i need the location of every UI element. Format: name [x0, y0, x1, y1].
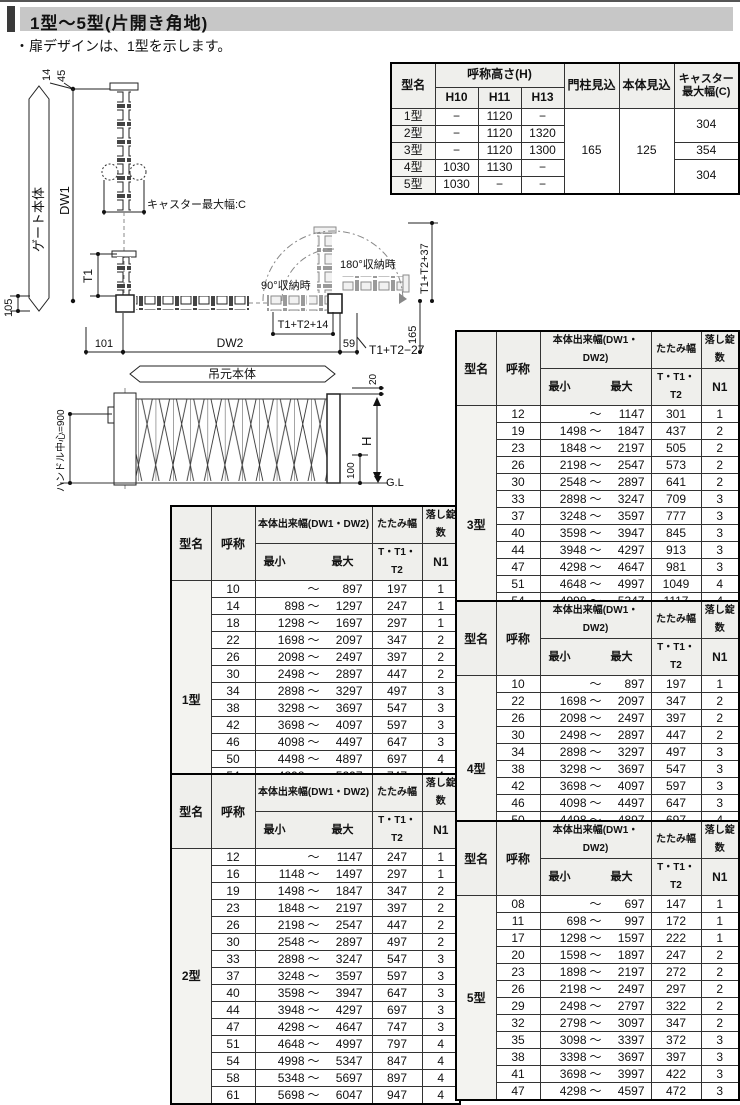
- size-row: 464098〜44976473: [171, 734, 460, 751]
- size-fold: 447: [372, 666, 422, 683]
- size-name: 44: [211, 1002, 255, 1019]
- size-row: 342898〜32974973: [171, 683, 460, 700]
- size-row: 514648〜499710494: [456, 576, 739, 593]
- col-model: 型名: [456, 331, 496, 406]
- spec-col-h13: H13: [521, 87, 564, 108]
- dim-14-label: 14: [41, 69, 53, 81]
- size-width: 2098〜2497: [540, 710, 651, 727]
- size-row: 585348〜56978974: [171, 1070, 460, 1087]
- size-lock: 3: [701, 1083, 739, 1101]
- size-lock: 2: [701, 981, 739, 998]
- page: { "page": { "title": "1型〜5型(片開き角地)", "no…: [0, 0, 740, 1055]
- stored-180-end-cap: [403, 275, 409, 292]
- size-width: 4998〜5347: [255, 1053, 372, 1070]
- size-width: 1698〜2097: [255, 632, 372, 649]
- size-name: 23: [211, 900, 255, 917]
- spec-col-caster: キャスター最大幅(C): [674, 63, 739, 108]
- size-row: 181298〜16972971: [171, 615, 460, 632]
- size-width: 〜897: [540, 676, 651, 693]
- size-row: 262198〜24972972: [456, 981, 739, 998]
- size-fold: 297: [372, 615, 422, 632]
- spec-h13: −: [521, 176, 564, 194]
- spec-model: 5型: [391, 176, 435, 194]
- spec-h10: −: [435, 125, 478, 142]
- gl-label: G.L: [386, 477, 404, 489]
- size-row: 353098〜33973723: [456, 1032, 739, 1049]
- size-name: 26: [211, 649, 255, 666]
- h-label: H: [359, 437, 374, 446]
- size-fold: 347: [651, 1015, 701, 1032]
- col-fold-sub: T・T1・T2: [372, 812, 422, 849]
- size-name: 22: [211, 632, 255, 649]
- size-row: 201598〜18972472: [456, 947, 739, 964]
- size-fold: 647: [372, 985, 422, 1002]
- size-name: 11: [496, 913, 540, 930]
- stored-180-label: 180°収納時: [340, 258, 396, 271]
- size-name: 34: [496, 744, 540, 761]
- size-name: 58: [211, 1070, 255, 1087]
- hanging-post: [114, 393, 136, 485]
- size-fold: 797: [372, 1036, 422, 1053]
- size-name: 41: [496, 1066, 540, 1083]
- spec-model: 1型: [391, 108, 435, 125]
- size-fold: 297: [651, 981, 701, 998]
- size-row: 11698〜9971721: [456, 913, 739, 930]
- stored-90-vertical-chain: [317, 233, 332, 293]
- size-name: 12: [211, 849, 255, 866]
- size-name: 37: [211, 968, 255, 985]
- size-row: 383398〜36973973: [456, 1049, 739, 1066]
- size-name: 30: [496, 474, 540, 491]
- col-fold: たたみ幅: [651, 821, 701, 859]
- size-width: 4098〜4497: [540, 795, 651, 812]
- size-lock: 3: [701, 778, 739, 795]
- size-table-type2: 型名呼称本体出来幅(DW1・DW2)たたみ幅落し錠数最小最大T・T1・T2N12…: [170, 773, 459, 1105]
- size-width: 3098〜3397: [540, 1032, 651, 1049]
- t1t2-37-label: T1+T2+37: [419, 243, 431, 294]
- size-row: 474298〜46477473: [171, 1019, 460, 1036]
- size-lock: 3: [701, 542, 739, 559]
- col-width: 本体出来幅(DW1・DW2): [540, 331, 651, 369]
- size-width: 4498〜4897: [255, 751, 372, 768]
- size-width: 3398〜3697: [540, 1049, 651, 1066]
- size-width: 2898〜3247: [255, 951, 372, 968]
- size-row: 615698〜60479474: [171, 1087, 460, 1105]
- size-name: 23: [496, 964, 540, 981]
- size-fold: 197: [651, 676, 701, 693]
- col-min-max: 最小最大: [540, 859, 651, 896]
- size-width: 2098〜2497: [255, 649, 372, 666]
- size-lock: 2: [701, 457, 739, 474]
- col-min-max: 最小最大: [540, 639, 651, 676]
- size-lock: 2: [701, 693, 739, 710]
- spec-h10: 1030: [435, 159, 478, 176]
- col-model: 型名: [456, 821, 496, 896]
- size-lock: 3: [701, 525, 739, 542]
- size-lock: 2: [701, 998, 739, 1015]
- size-name: 18: [211, 615, 255, 632]
- spec-h10: −: [435, 142, 478, 159]
- size-name: 32: [496, 1015, 540, 1032]
- size-name: 40: [211, 985, 255, 1002]
- size-width: 1148〜1497: [255, 866, 372, 883]
- size-row: 332898〜32475473: [171, 951, 460, 968]
- col-lock-sub: N1: [701, 859, 739, 896]
- size-fold: 505: [651, 440, 701, 457]
- stored-180-chain: [342, 276, 404, 291]
- size-width: 〜697: [540, 896, 651, 913]
- size-row: 332898〜32477093: [456, 491, 739, 508]
- spec-col-body: 本体見込: [619, 63, 674, 108]
- size-fold: 709: [651, 491, 701, 508]
- size-fold: 497: [372, 683, 422, 700]
- size-width: 2198〜2497: [540, 981, 651, 998]
- size-width: 1498〜1847: [255, 883, 372, 900]
- col-name: 呼称: [496, 331, 540, 406]
- size-fold: 197: [372, 581, 422, 598]
- size-name: 26: [496, 981, 540, 998]
- size-fold: 247: [651, 947, 701, 964]
- col-min-max: 最小最大: [540, 369, 651, 406]
- spec-h11: 1120: [478, 125, 521, 142]
- size-lock: 1: [701, 896, 739, 913]
- stored-90-vertical-cap: [314, 227, 336, 233]
- size-fold: 247: [372, 598, 422, 615]
- size-width: 4648〜4997: [255, 1036, 372, 1053]
- gate-body-label: ゲート本体: [31, 187, 46, 252]
- col-width: 本体出来幅(DW1・DW2): [255, 506, 372, 544]
- spec-model: 3型: [391, 142, 435, 159]
- size-name: 23: [496, 440, 540, 457]
- size-row: 423698〜40975973: [171, 717, 460, 734]
- col-fold: たたみ幅: [372, 506, 422, 544]
- size-width: 4098〜4497: [255, 734, 372, 751]
- accordion-lattice: [136, 399, 327, 481]
- col-lock-sub: N1: [701, 639, 739, 676]
- size-width: 1698〜2097: [540, 693, 651, 710]
- end-post: [328, 294, 342, 313]
- size-name: 51: [211, 1036, 255, 1053]
- size-fold: 147: [651, 896, 701, 913]
- size-name: 34: [211, 683, 255, 700]
- col-width: 本体出来幅(DW1・DW2): [540, 821, 651, 859]
- size-width: 3598〜3947: [540, 525, 651, 542]
- size-lock: 2: [701, 727, 739, 744]
- size-fold: 597: [372, 968, 422, 985]
- size-fold: 172: [651, 913, 701, 930]
- title-accent-bar: [7, 6, 15, 32]
- size-row: 383298〜36975473: [171, 700, 460, 717]
- size-name: 51: [496, 576, 540, 593]
- size-width: 4298〜4597: [540, 1083, 651, 1101]
- size-lock: 2: [701, 964, 739, 981]
- size-fold: 897: [372, 1070, 422, 1087]
- size-fold: 447: [372, 917, 422, 934]
- col-name: 呼称: [211, 506, 255, 581]
- size-lock: 3: [701, 744, 739, 761]
- size-width: 3948〜4297: [540, 542, 651, 559]
- size-name: 19: [211, 883, 255, 900]
- size-row: 262198〜25475732: [456, 457, 739, 474]
- size-row: 544998〜53478474: [171, 1053, 460, 1070]
- size-fold: 777: [651, 508, 701, 525]
- size-row: 443948〜42979133: [456, 542, 739, 559]
- size-row: 423698〜40975973: [456, 778, 739, 795]
- size-table: 型名呼称本体出来幅(DW1・DW2)たたみ幅落し錠数最小最大T・T1・T2N12…: [170, 773, 461, 1105]
- size-row: 231898〜21972722: [456, 964, 739, 981]
- size-width: 3698〜3997: [540, 1066, 651, 1083]
- col-fold: たたみ幅: [651, 601, 701, 639]
- size-name: 44: [496, 542, 540, 559]
- size-row: 373248〜35975973: [171, 968, 460, 985]
- size-fold: 845: [651, 525, 701, 542]
- model-cell: 2型: [171, 849, 211, 1105]
- size-width: 2548〜2897: [255, 934, 372, 951]
- handle-center-label: ハンドル中心=900: [54, 409, 67, 492]
- handle-center-dim: [68, 412, 112, 485]
- folded-gate-plan: [102, 83, 146, 212]
- elevation-end-post: [327, 394, 340, 483]
- col-fold-sub: T・T1・T2: [372, 544, 422, 581]
- size-fold: 547: [651, 761, 701, 778]
- size-lock: 1: [701, 676, 739, 693]
- size-width: 2898〜3297: [540, 744, 651, 761]
- col-fold-sub: T・T1・T2: [651, 639, 701, 676]
- extended-gate-chain: [136, 296, 249, 310]
- size-width: 3598〜3947: [255, 985, 372, 1002]
- size-row: 262098〜24973972: [171, 649, 460, 666]
- dim-45-label: 45: [56, 70, 68, 82]
- size-fold: 222: [651, 930, 701, 947]
- size-width: 2898〜3247: [540, 491, 651, 508]
- size-width: 3948〜4297: [255, 1002, 372, 1019]
- size-lock: 2: [701, 423, 739, 440]
- size-row: 403598〜39476473: [171, 985, 460, 1002]
- size-lock: 1: [701, 913, 739, 930]
- size-lock: 3: [701, 761, 739, 778]
- size-fold: 397: [651, 1049, 701, 1066]
- size-row: 262198〜25474472: [171, 917, 460, 934]
- size-row: 342898〜32974973: [456, 744, 739, 761]
- size-fold: 547: [372, 700, 422, 717]
- size-row: 171298〜15972221: [456, 930, 739, 947]
- size-fold: 647: [651, 795, 701, 812]
- size-row: 3型12〜11473011: [456, 406, 739, 423]
- t1-label: T1: [81, 269, 95, 283]
- size-lock: 2: [701, 474, 739, 491]
- t1-unit: [112, 251, 136, 295]
- size-row: 474298〜45974723: [456, 1083, 739, 1101]
- spec-col-height: 呼称高さ(H): [435, 63, 564, 87]
- size-width: 1298〜1697: [255, 615, 372, 632]
- spec-col-model: 型名: [391, 63, 435, 108]
- size-table-type5: 型名呼称本体出来幅(DW1・DW2)たたみ幅落し錠数最小最大T・T1・T2N15…: [455, 820, 738, 1101]
- size-row: 231848〜21975052: [456, 440, 739, 457]
- spec-col-h10: H10: [435, 87, 478, 108]
- size-name: 47: [496, 1083, 540, 1101]
- size-table-type3: 型名呼称本体出来幅(DW1・DW2)たたみ幅落し錠数最小最大T・T1・T2N13…: [455, 330, 738, 645]
- size-name: 54: [211, 1053, 255, 1070]
- spec-pillar-value: 165: [564, 108, 619, 194]
- size-row: 302548〜28976412: [456, 474, 739, 491]
- gl-marker: [374, 476, 382, 483]
- size-row: 514648〜49977974: [171, 1036, 460, 1053]
- size-fold: 981: [651, 559, 701, 576]
- size-name: 20: [496, 947, 540, 964]
- size-name: 38: [496, 1049, 540, 1066]
- col-width: 本体出来幅(DW1・DW2): [540, 601, 651, 639]
- size-row: 4型10〜8971971: [456, 676, 739, 693]
- size-row: 231848〜21973972: [171, 900, 460, 917]
- gate-elevation: [60, 388, 388, 489]
- corner-post: [116, 295, 134, 312]
- size-fold: 422: [651, 1066, 701, 1083]
- size-name: 16: [211, 866, 255, 883]
- col-model: 型名: [456, 601, 496, 676]
- size-lock: 1: [701, 406, 739, 423]
- col-model: 型名: [171, 774, 211, 849]
- size-fold: 322: [651, 998, 701, 1015]
- caster-max-label: キャスター最大幅:C: [147, 197, 246, 211]
- gate-handle: [108, 407, 114, 423]
- size-row: 161148〜14972971: [171, 866, 460, 883]
- size-fold: 913: [651, 542, 701, 559]
- size-lock: 4: [701, 576, 739, 593]
- size-row: 373248〜35977773: [456, 508, 739, 525]
- spec-col-pillar: 門柱見込: [564, 63, 619, 108]
- size-width: 1848〜2197: [255, 900, 372, 917]
- size-width: 1598〜1897: [540, 947, 651, 964]
- dim-20-label: 20: [368, 373, 379, 385]
- caster-wheel-right: [130, 164, 146, 180]
- dim-59-label: 59: [343, 338, 355, 350]
- caster-wheel-left: [102, 164, 118, 180]
- size-name: 30: [211, 934, 255, 951]
- size-fold: 597: [372, 717, 422, 734]
- h-dim: [373, 397, 381, 481]
- size-width: 2548〜2897: [540, 474, 651, 491]
- size-name: 26: [496, 710, 540, 727]
- size-row: 221698〜20973472: [171, 632, 460, 649]
- size-name: 19: [496, 423, 540, 440]
- spec-model: 2型: [391, 125, 435, 142]
- size-lock: 3: [701, 795, 739, 812]
- spec-h11: 1120: [478, 108, 521, 125]
- size-width: 2898〜3297: [255, 683, 372, 700]
- size-width: 5698〜6047: [255, 1087, 372, 1105]
- size-width: 1298〜1597: [540, 930, 651, 947]
- size-name: 26: [496, 457, 540, 474]
- spec-h13: 1300: [521, 142, 564, 159]
- size-fold: 347: [651, 693, 701, 710]
- spec-row-1: 1型 − 1120 − 165 125 304: [391, 108, 739, 125]
- size-lock: 3: [701, 1066, 739, 1083]
- size-name: 33: [211, 951, 255, 968]
- col-lock: 落し錠数: [701, 821, 739, 859]
- size-fold: 497: [372, 934, 422, 951]
- size-name: 42: [496, 778, 540, 795]
- size-width: 3698〜4097: [255, 717, 372, 734]
- size-fold: 641: [651, 474, 701, 491]
- size-fold: 397: [372, 900, 422, 917]
- size-width: 3298〜3697: [255, 700, 372, 717]
- size-fold: 347: [372, 632, 422, 649]
- size-fold: 497: [651, 744, 701, 761]
- spec-h13: 1320: [521, 125, 564, 142]
- dim-101-label: 101: [95, 338, 113, 350]
- size-name: 12: [496, 406, 540, 423]
- size-row: 504498〜48976974: [171, 751, 460, 768]
- size-row: 464098〜44976473: [456, 795, 739, 812]
- size-width: 2798〜3097: [540, 1015, 651, 1032]
- size-row: 403598〜39478453: [456, 525, 739, 542]
- size-row: 302498〜28974472: [171, 666, 460, 683]
- col-name: 呼称: [496, 601, 540, 676]
- size-fold: 247: [372, 849, 422, 866]
- size-width: 2198〜2547: [540, 457, 651, 474]
- t1t2-14-label: T1+T2+14: [278, 319, 329, 331]
- size-lock: 2: [701, 710, 739, 727]
- spec-h10: 1030: [435, 176, 478, 194]
- size-name: 61: [211, 1087, 255, 1105]
- size-fold: 1049: [651, 576, 701, 593]
- size-row: 1型10〜8971971: [171, 581, 460, 598]
- size-row: 2型12〜11472471: [171, 849, 460, 866]
- size-name: 22: [496, 693, 540, 710]
- size-width: 2498〜2897: [255, 666, 372, 683]
- spec-h11: 1120: [478, 142, 521, 159]
- size-row: 191498〜18473472: [171, 883, 460, 900]
- size-name: 47: [211, 1019, 255, 1036]
- size-fold: 437: [651, 423, 701, 440]
- col-fold: たたみ幅: [651, 331, 701, 369]
- size-width: 3698〜4097: [540, 778, 651, 795]
- hinge-body-label: 吊元本体: [208, 367, 256, 381]
- size-name: 08: [496, 896, 540, 913]
- size-fold: 697: [372, 751, 422, 768]
- design-note: ・扉デザインは、1型を示します。: [15, 36, 231, 56]
- size-lock: 2: [701, 440, 739, 457]
- col-fold: たたみ幅: [372, 774, 422, 812]
- spec-h13: −: [521, 108, 564, 125]
- size-width: 3248〜3597: [540, 508, 651, 525]
- gate-dimension-diagram: 14 45 ゲート本体 DW1 キャスター最大幅:C T1: [0, 55, 452, 505]
- col-name: 呼称: [496, 821, 540, 896]
- size-fold: 573: [651, 457, 701, 474]
- size-width: 1898〜2197: [540, 964, 651, 981]
- size-name: 40: [496, 525, 540, 542]
- size-fold: 347: [372, 883, 422, 900]
- col-min-max: 最小最大: [255, 812, 372, 849]
- size-fold: 547: [372, 951, 422, 968]
- spec-h10: −: [435, 108, 478, 125]
- size-fold: 397: [372, 649, 422, 666]
- size-width: 〜897: [255, 581, 372, 598]
- size-row: 191498〜18474372: [456, 423, 739, 440]
- size-lock: 3: [701, 508, 739, 525]
- size-name: 10: [496, 676, 540, 693]
- size-row: 5型08〜6971471: [456, 896, 739, 913]
- size-fold: 397: [651, 710, 701, 727]
- size-row: 221698〜20973472: [456, 693, 739, 710]
- size-row: 443948〜42976973: [171, 1002, 460, 1019]
- size-name: 30: [211, 666, 255, 683]
- stored-90-label: 90°収納時: [261, 279, 311, 292]
- spec-h11: 1130: [478, 159, 521, 176]
- spec-body-value: 125: [619, 108, 674, 194]
- size-lock: 3: [701, 1049, 739, 1066]
- size-row: 302548〜28974972: [171, 934, 460, 951]
